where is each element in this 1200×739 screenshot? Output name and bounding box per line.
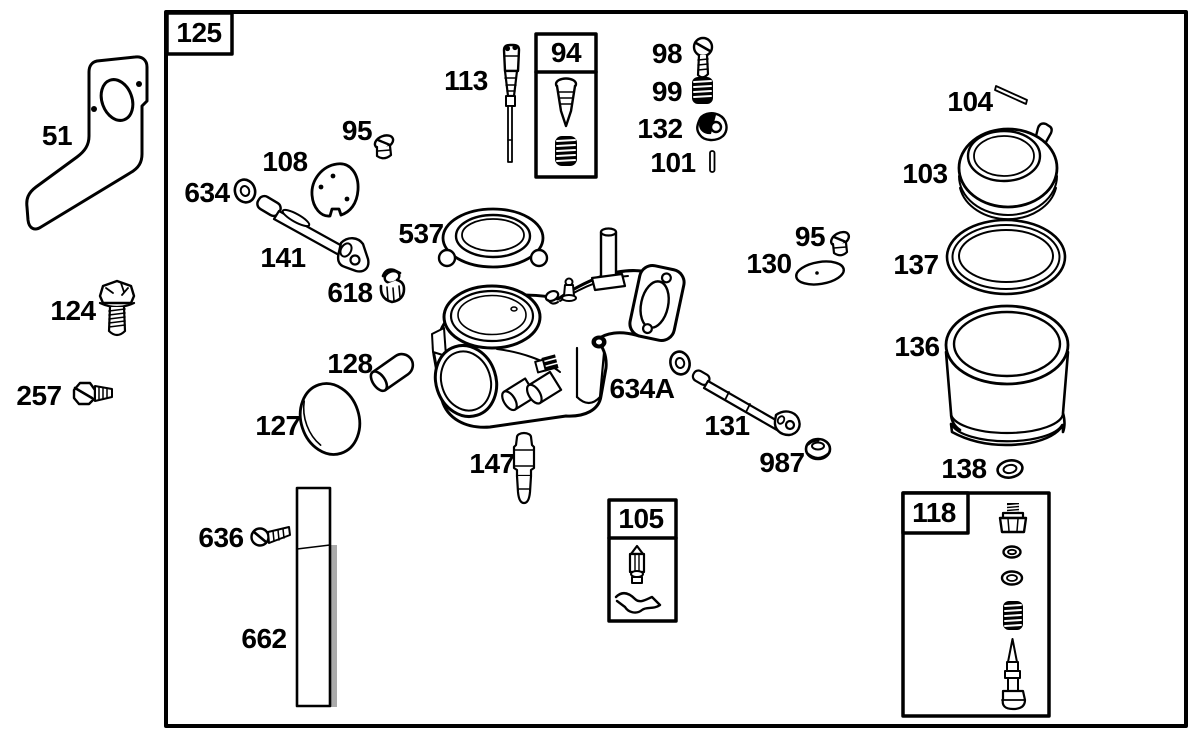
part-label-618: 618 bbox=[327, 279, 372, 307]
part-label-113: 113 bbox=[444, 67, 488, 95]
part-label-137: 137 bbox=[893, 251, 938, 279]
part-label-131: 131 bbox=[704, 412, 749, 440]
part-634-washer bbox=[232, 177, 258, 205]
part-128-spacer-tube bbox=[368, 350, 417, 394]
part-label-141: 141 bbox=[260, 244, 305, 272]
part-537-gasket bbox=[439, 209, 547, 267]
part-label-124: 124 bbox=[50, 297, 95, 325]
part-104-pin bbox=[995, 86, 1027, 104]
part-label-95-right: 95 bbox=[795, 223, 825, 251]
part-label-108: 108 bbox=[262, 148, 307, 176]
part-95-plug-screw-upper bbox=[373, 133, 395, 158]
part-138-oring bbox=[996, 458, 1024, 479]
parts-diagram-svg bbox=[0, 0, 1200, 739]
part-label-136: 136 bbox=[894, 333, 939, 361]
part-101-pin bbox=[710, 151, 715, 172]
part-label-132: 132 bbox=[637, 115, 682, 143]
part-label-99: 99 bbox=[652, 78, 682, 106]
part-130-welch-plug bbox=[795, 258, 846, 287]
part-label-95-upper: 95 bbox=[342, 117, 372, 145]
part-103-air-cleaner-ring bbox=[959, 124, 1057, 220]
part-label-125: 125 bbox=[176, 19, 221, 47]
part-label-118: 118 bbox=[912, 499, 956, 527]
part-137-bowl-oring bbox=[947, 220, 1065, 294]
part-label-104: 104 bbox=[947, 88, 992, 116]
part-label-101: 101 bbox=[650, 149, 695, 177]
part-987-cap bbox=[806, 439, 830, 459]
parts-diagram-page: 125 51 124 257 634 108 95 113 94 98 99 1… bbox=[0, 0, 1200, 739]
part-label-128: 128 bbox=[327, 350, 372, 378]
part-label-51: 51 bbox=[42, 122, 72, 150]
part-136-float-bowl bbox=[946, 306, 1068, 445]
part-636-screw bbox=[252, 527, 291, 546]
part-132-swivel bbox=[697, 113, 726, 140]
part-108-choke-plate bbox=[312, 164, 358, 216]
part-label-147: 147 bbox=[469, 450, 514, 478]
part-label-130: 130 bbox=[746, 250, 791, 278]
part-257-screw bbox=[74, 383, 112, 404]
part-label-987: 987 bbox=[759, 449, 804, 477]
part-label-636: 636 bbox=[198, 524, 243, 552]
part-label-98: 98 bbox=[652, 40, 682, 68]
part-label-127: 127 bbox=[255, 412, 300, 440]
part-618-seal-clip bbox=[381, 269, 404, 302]
part-113-needle-assembly bbox=[504, 45, 519, 162]
part-662-link-strip bbox=[297, 488, 337, 707]
part-99-spring bbox=[692, 77, 713, 104]
part-98-screw bbox=[694, 38, 712, 77]
part-label-634: 634 bbox=[184, 179, 229, 207]
part-label-105: 105 bbox=[618, 505, 663, 533]
part-label-662: 662 bbox=[241, 625, 286, 653]
part-label-537: 537 bbox=[398, 220, 443, 248]
part-label-634A: 634A bbox=[610, 375, 675, 403]
part-label-103: 103 bbox=[902, 160, 947, 188]
part-label-94: 94 bbox=[551, 39, 581, 67]
part-label-257: 257 bbox=[16, 382, 61, 410]
part-127-throttle-plate bbox=[291, 376, 368, 462]
part-147-fuel-valve bbox=[514, 433, 534, 503]
part-124-hex-bolt bbox=[100, 281, 134, 335]
part-label-138: 138 bbox=[941, 455, 986, 483]
part-95-plug-screw-right bbox=[829, 229, 851, 255]
